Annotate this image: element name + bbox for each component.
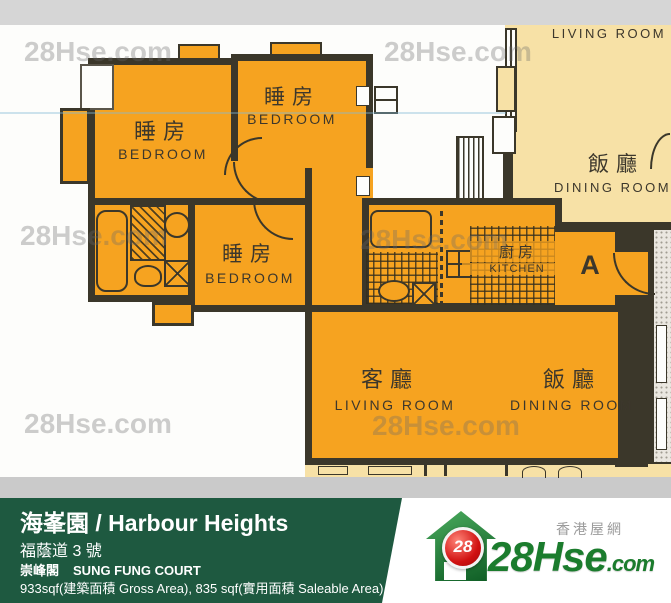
building-title: 海峯園 / Harbour Heights bbox=[20, 504, 288, 538]
logo-badge-28: 28 bbox=[442, 527, 484, 569]
block-name: 崇峰閣SUNG FUNG COURT bbox=[20, 560, 201, 579]
floor-drain-icon bbox=[412, 282, 436, 306]
neighbor-window-sill bbox=[496, 66, 516, 112]
neighbor-living-room-label: LIVING ROOM bbox=[545, 26, 671, 41]
watermark-text: 28Hse.com bbox=[384, 36, 532, 68]
bedroom3-label-en: BEDROOM bbox=[183, 270, 317, 286]
top-grey-band bbox=[0, 0, 671, 25]
dining-room-label-cn: 飯廳 bbox=[510, 362, 634, 394]
bedroom1-label-en: BEDROOM bbox=[96, 146, 230, 162]
bedroom1-label-cn: 睡房 bbox=[100, 114, 226, 146]
bedroom2-label-cn: 睡房 bbox=[228, 81, 356, 111]
lower-unit-tick bbox=[505, 464, 508, 476]
lower-unit-fixture bbox=[368, 466, 412, 475]
bedroom2-label-en: BEDROOM bbox=[225, 111, 359, 127]
site-logo: 28Hse.com bbox=[488, 533, 654, 581]
right-wall bbox=[615, 225, 648, 255]
watermark-text: 28Hse.com bbox=[20, 220, 168, 252]
area-info: 933sqf(建築面積 Gross Area), 835 sqf(實用面積 Sa… bbox=[20, 578, 383, 597]
corridor-doorframe bbox=[656, 398, 667, 450]
watermark-text: 28Hse.com bbox=[24, 36, 172, 68]
watermark-text: 28Hse.com bbox=[372, 410, 520, 442]
logo-brand-text: 28Hse bbox=[488, 533, 607, 581]
door-jamb bbox=[356, 176, 370, 196]
partition-dashed bbox=[440, 208, 443, 306]
sink-icon bbox=[164, 212, 190, 238]
door-jamb bbox=[356, 86, 370, 106]
stairs-icon bbox=[456, 136, 484, 202]
building-address: 福蔭道 3 號 bbox=[20, 537, 102, 561]
living-room-label-cn: 客廳 bbox=[328, 362, 452, 394]
watermark-text: 28Hse.com bbox=[360, 224, 508, 256]
bedroom3-label-cn: 睡房 bbox=[186, 238, 314, 268]
corridor-doorframe bbox=[656, 325, 667, 383]
unit-a-label: A bbox=[573, 250, 607, 281]
bedroom3-bay-window-icon bbox=[152, 302, 194, 326]
bedroom1-corner-notch bbox=[80, 64, 114, 110]
watermark-text: 28Hse.com bbox=[24, 408, 172, 440]
toilet-icon bbox=[134, 265, 162, 287]
floorplan-image: LIVING ROOM 飯廳 DINING ROOM 廚房 KITCHEN bbox=[0, 0, 671, 603]
lobby-window-icon bbox=[374, 86, 398, 114]
window-sill-icon bbox=[178, 44, 220, 60]
lower-unit-fixture bbox=[318, 466, 348, 475]
lower-unit-arc bbox=[558, 466, 582, 478]
lower-unit-arc bbox=[522, 466, 546, 478]
block-name-cn: 崇峰閣 bbox=[20, 563, 59, 578]
lobby-shaft bbox=[492, 116, 516, 154]
lower-unit-tick bbox=[444, 464, 447, 476]
logo-tld-text: .com bbox=[607, 551, 654, 577]
bottom-grey-band bbox=[0, 477, 671, 498]
dining-room-label-en: DINING ROOM bbox=[503, 397, 641, 413]
block-name-en: SUNG FUNG COURT bbox=[73, 563, 201, 578]
bedroom1-bay-window-icon bbox=[60, 108, 90, 184]
neighbor-dining-room-label-en: DINING ROOM bbox=[545, 180, 671, 195]
lower-unit-tick bbox=[424, 464, 427, 476]
toilet-icon bbox=[378, 280, 410, 302]
